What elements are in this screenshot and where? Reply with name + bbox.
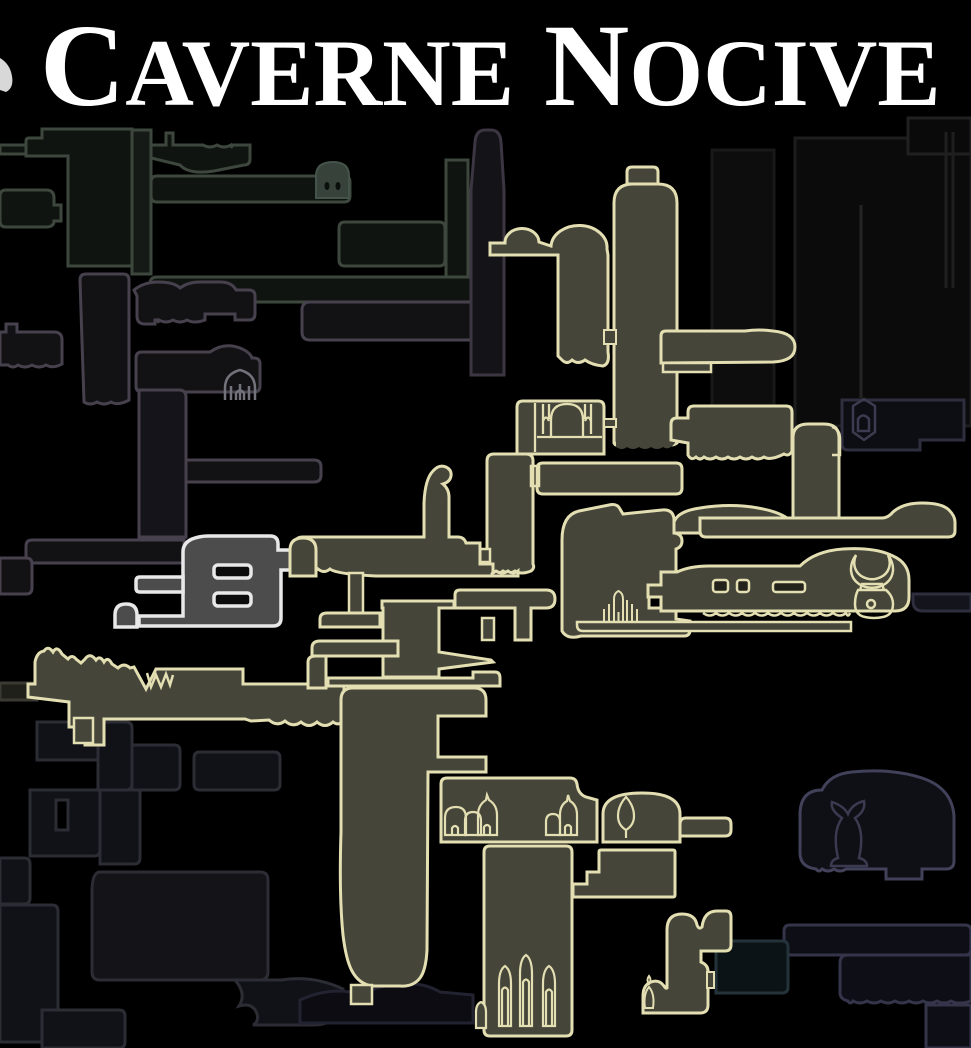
svg-text:CAVERNE: CAVERNE [40,0,514,131]
svg-text:NOCIVE: NOCIVE [544,0,941,131]
